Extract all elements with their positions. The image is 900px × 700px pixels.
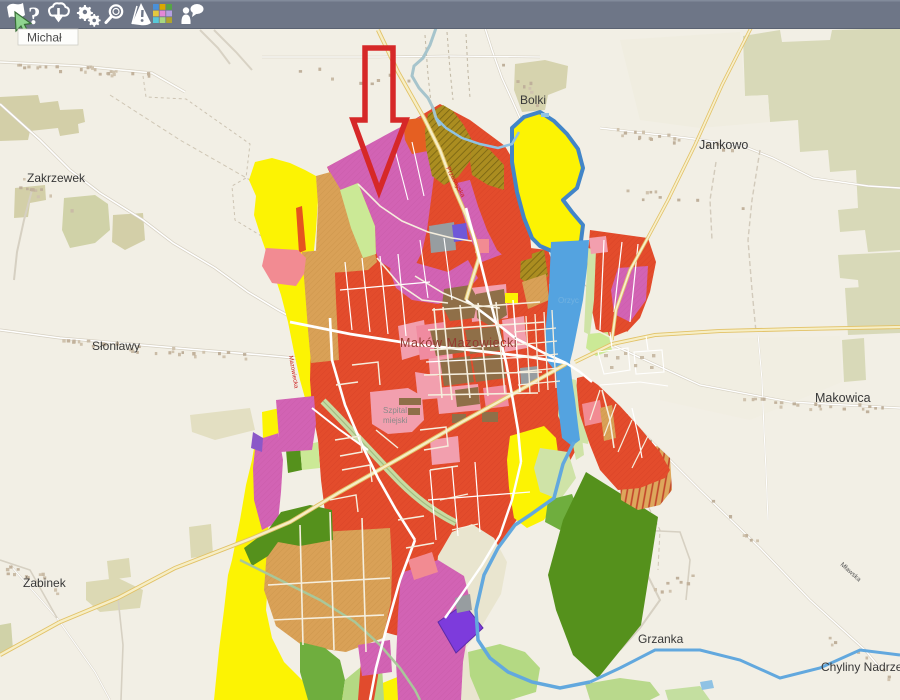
svg-text:?: ? [28,3,41,30]
svg-text:Maków Mazowiecki: Maków Mazowiecki [400,336,517,350]
svg-text:Zakrzewek: Zakrzewek [27,171,86,185]
svg-text:Michał: Michał [27,31,62,45]
svg-text:Jankowo: Jankowo [699,138,748,152]
svg-text:Szpital: Szpital [383,406,407,415]
svg-text:Makowica: Makowica [815,391,871,405]
svg-text:Grzanka: Grzanka [638,632,684,646]
svg-text:Chyliny Nadrzecz: Chyliny Nadrzecz [821,660,900,674]
svg-text:Żabinek: Żabinek [23,576,67,590]
svg-text:Słoniawy: Słoniawy [92,339,140,353]
svg-text:Orzyc: Orzyc [558,296,579,305]
svg-text:Bolki: Bolki [520,93,546,107]
svg-text:miejski: miejski [383,416,408,425]
